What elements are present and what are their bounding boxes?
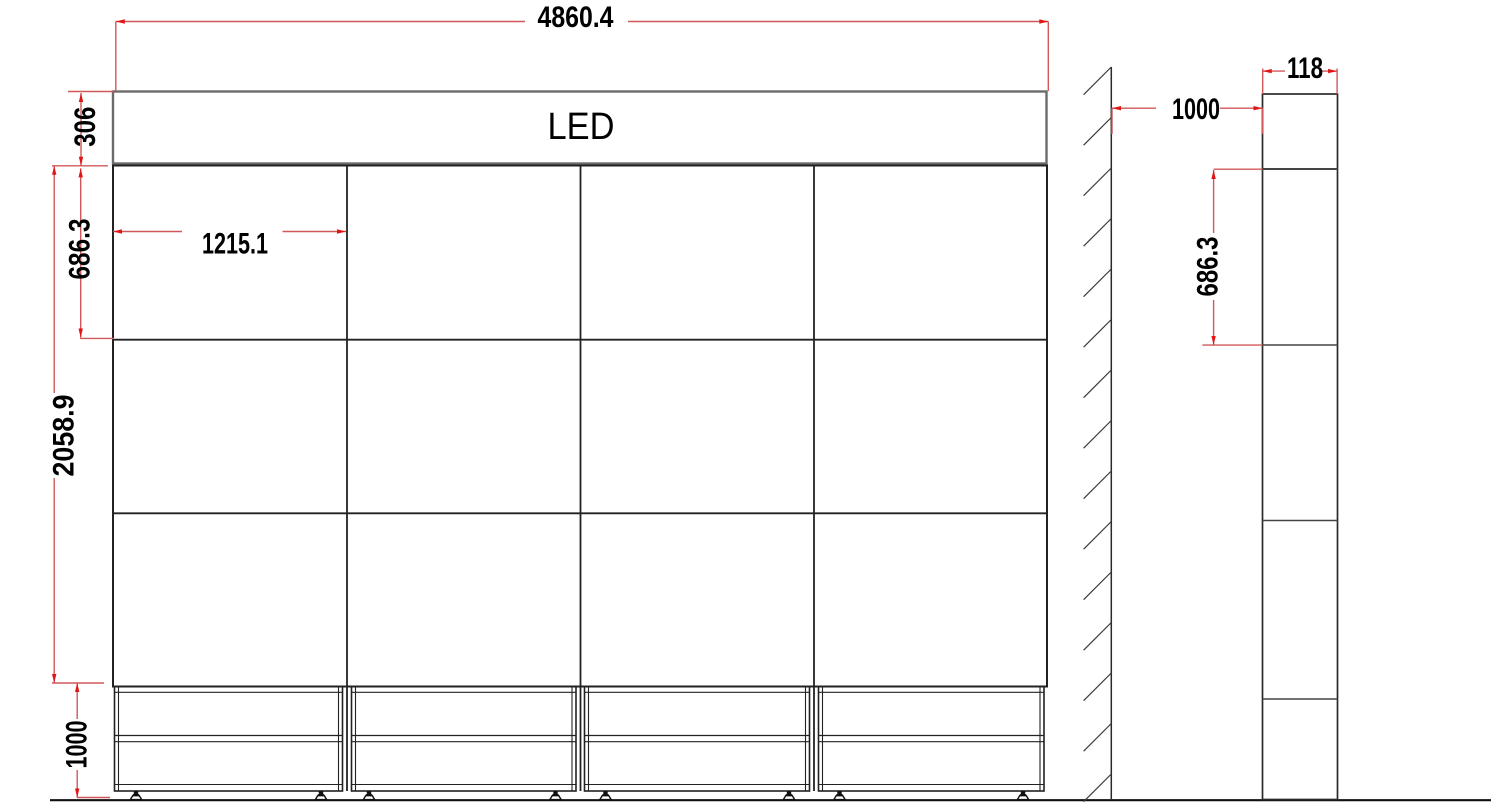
svg-text:306: 306 [69, 107, 102, 147]
svg-text:4860.4: 4860.4 [538, 1, 614, 34]
svg-text:2058.9: 2058.9 [48, 395, 81, 477]
svg-text:1215.1: 1215.1 [202, 228, 268, 261]
svg-text:118: 118 [1287, 52, 1323, 85]
svg-text:686.3: 686.3 [1192, 237, 1225, 297]
svg-text:1000: 1000 [1172, 93, 1220, 126]
svg-text:686.3: 686.3 [64, 219, 97, 280]
svg-text:1000: 1000 [61, 721, 94, 769]
svg-text:LED: LED [548, 106, 615, 148]
